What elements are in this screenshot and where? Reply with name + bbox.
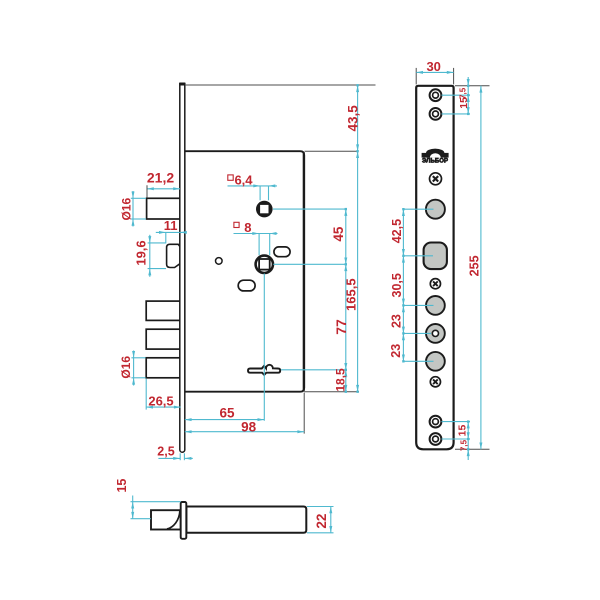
svg-text:Ø16: Ø16: [119, 356, 133, 379]
svg-text:15: 15: [458, 97, 470, 109]
svg-text:23: 23: [389, 344, 403, 358]
svg-text:98: 98: [241, 420, 257, 435]
svg-text:15: 15: [115, 479, 129, 493]
svg-text:45: 45: [331, 226, 346, 242]
svg-text:42,5: 42,5: [390, 219, 404, 243]
svg-text:8: 8: [244, 220, 251, 235]
svg-text:77: 77: [333, 319, 349, 335]
svg-text:65: 65: [219, 406, 235, 421]
svg-text:43,5: 43,5: [346, 105, 361, 132]
svg-text:18,5: 18,5: [334, 368, 348, 392]
svg-text:ЭЛЬБОР: ЭЛЬБОР: [422, 158, 448, 164]
svg-text:2,5: 2,5: [157, 444, 174, 458]
svg-text:30,5: 30,5: [390, 273, 404, 297]
svg-text:255: 255: [467, 255, 481, 276]
svg-text:22: 22: [314, 514, 329, 529]
svg-text:6,4: 6,4: [234, 172, 253, 187]
svg-text:15: 15: [457, 425, 469, 437]
svg-text:23: 23: [389, 314, 403, 328]
svg-text:Ø16: Ø16: [120, 198, 134, 221]
svg-text:26,5: 26,5: [148, 393, 173, 408]
svg-text:11: 11: [164, 218, 178, 233]
svg-text:19,6: 19,6: [133, 240, 148, 265]
svg-text:21,2: 21,2: [147, 170, 174, 186]
svg-text:30: 30: [426, 59, 440, 74]
svg-text:7,5: 7,5: [460, 439, 469, 451]
